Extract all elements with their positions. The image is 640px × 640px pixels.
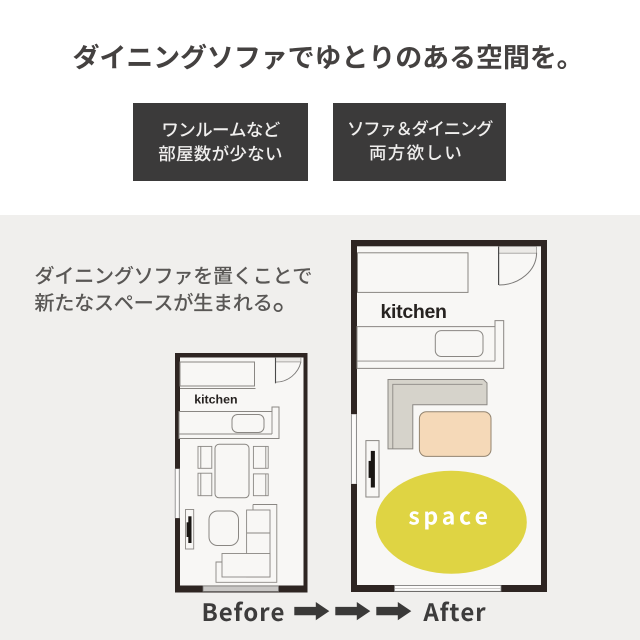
- svg-text:kitchen: kitchen: [381, 301, 447, 323]
- svg-text:space: space: [408, 497, 491, 531]
- svg-text:kitchen: kitchen: [194, 393, 237, 407]
